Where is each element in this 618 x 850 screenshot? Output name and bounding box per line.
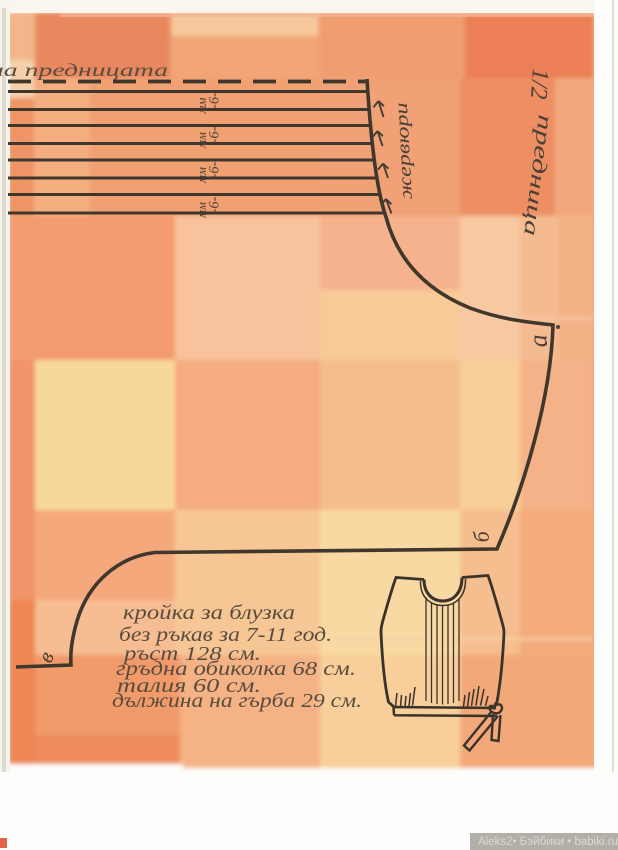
svg-text:Aleks2• Бэйбики • babiki.ru: Aleks2• Бэйбики • babiki.ru xyxy=(478,836,618,848)
svg-text:1/2: 1/2 xyxy=(525,68,553,100)
svg-text:мм: мм xyxy=(195,202,209,219)
svg-text:мм: мм xyxy=(195,132,209,149)
svg-text:а: а xyxy=(523,334,553,348)
svg-text:дължина на гърба 29 см.: дължина на гърба 29 см. xyxy=(112,690,362,712)
svg-text:мм: мм xyxy=(195,98,209,115)
svg-text:кройка за блузка: кройка за блузка xyxy=(123,602,295,624)
svg-text:на предницата: на предницата xyxy=(0,60,168,80)
svg-text:мм: мм xyxy=(195,167,209,184)
